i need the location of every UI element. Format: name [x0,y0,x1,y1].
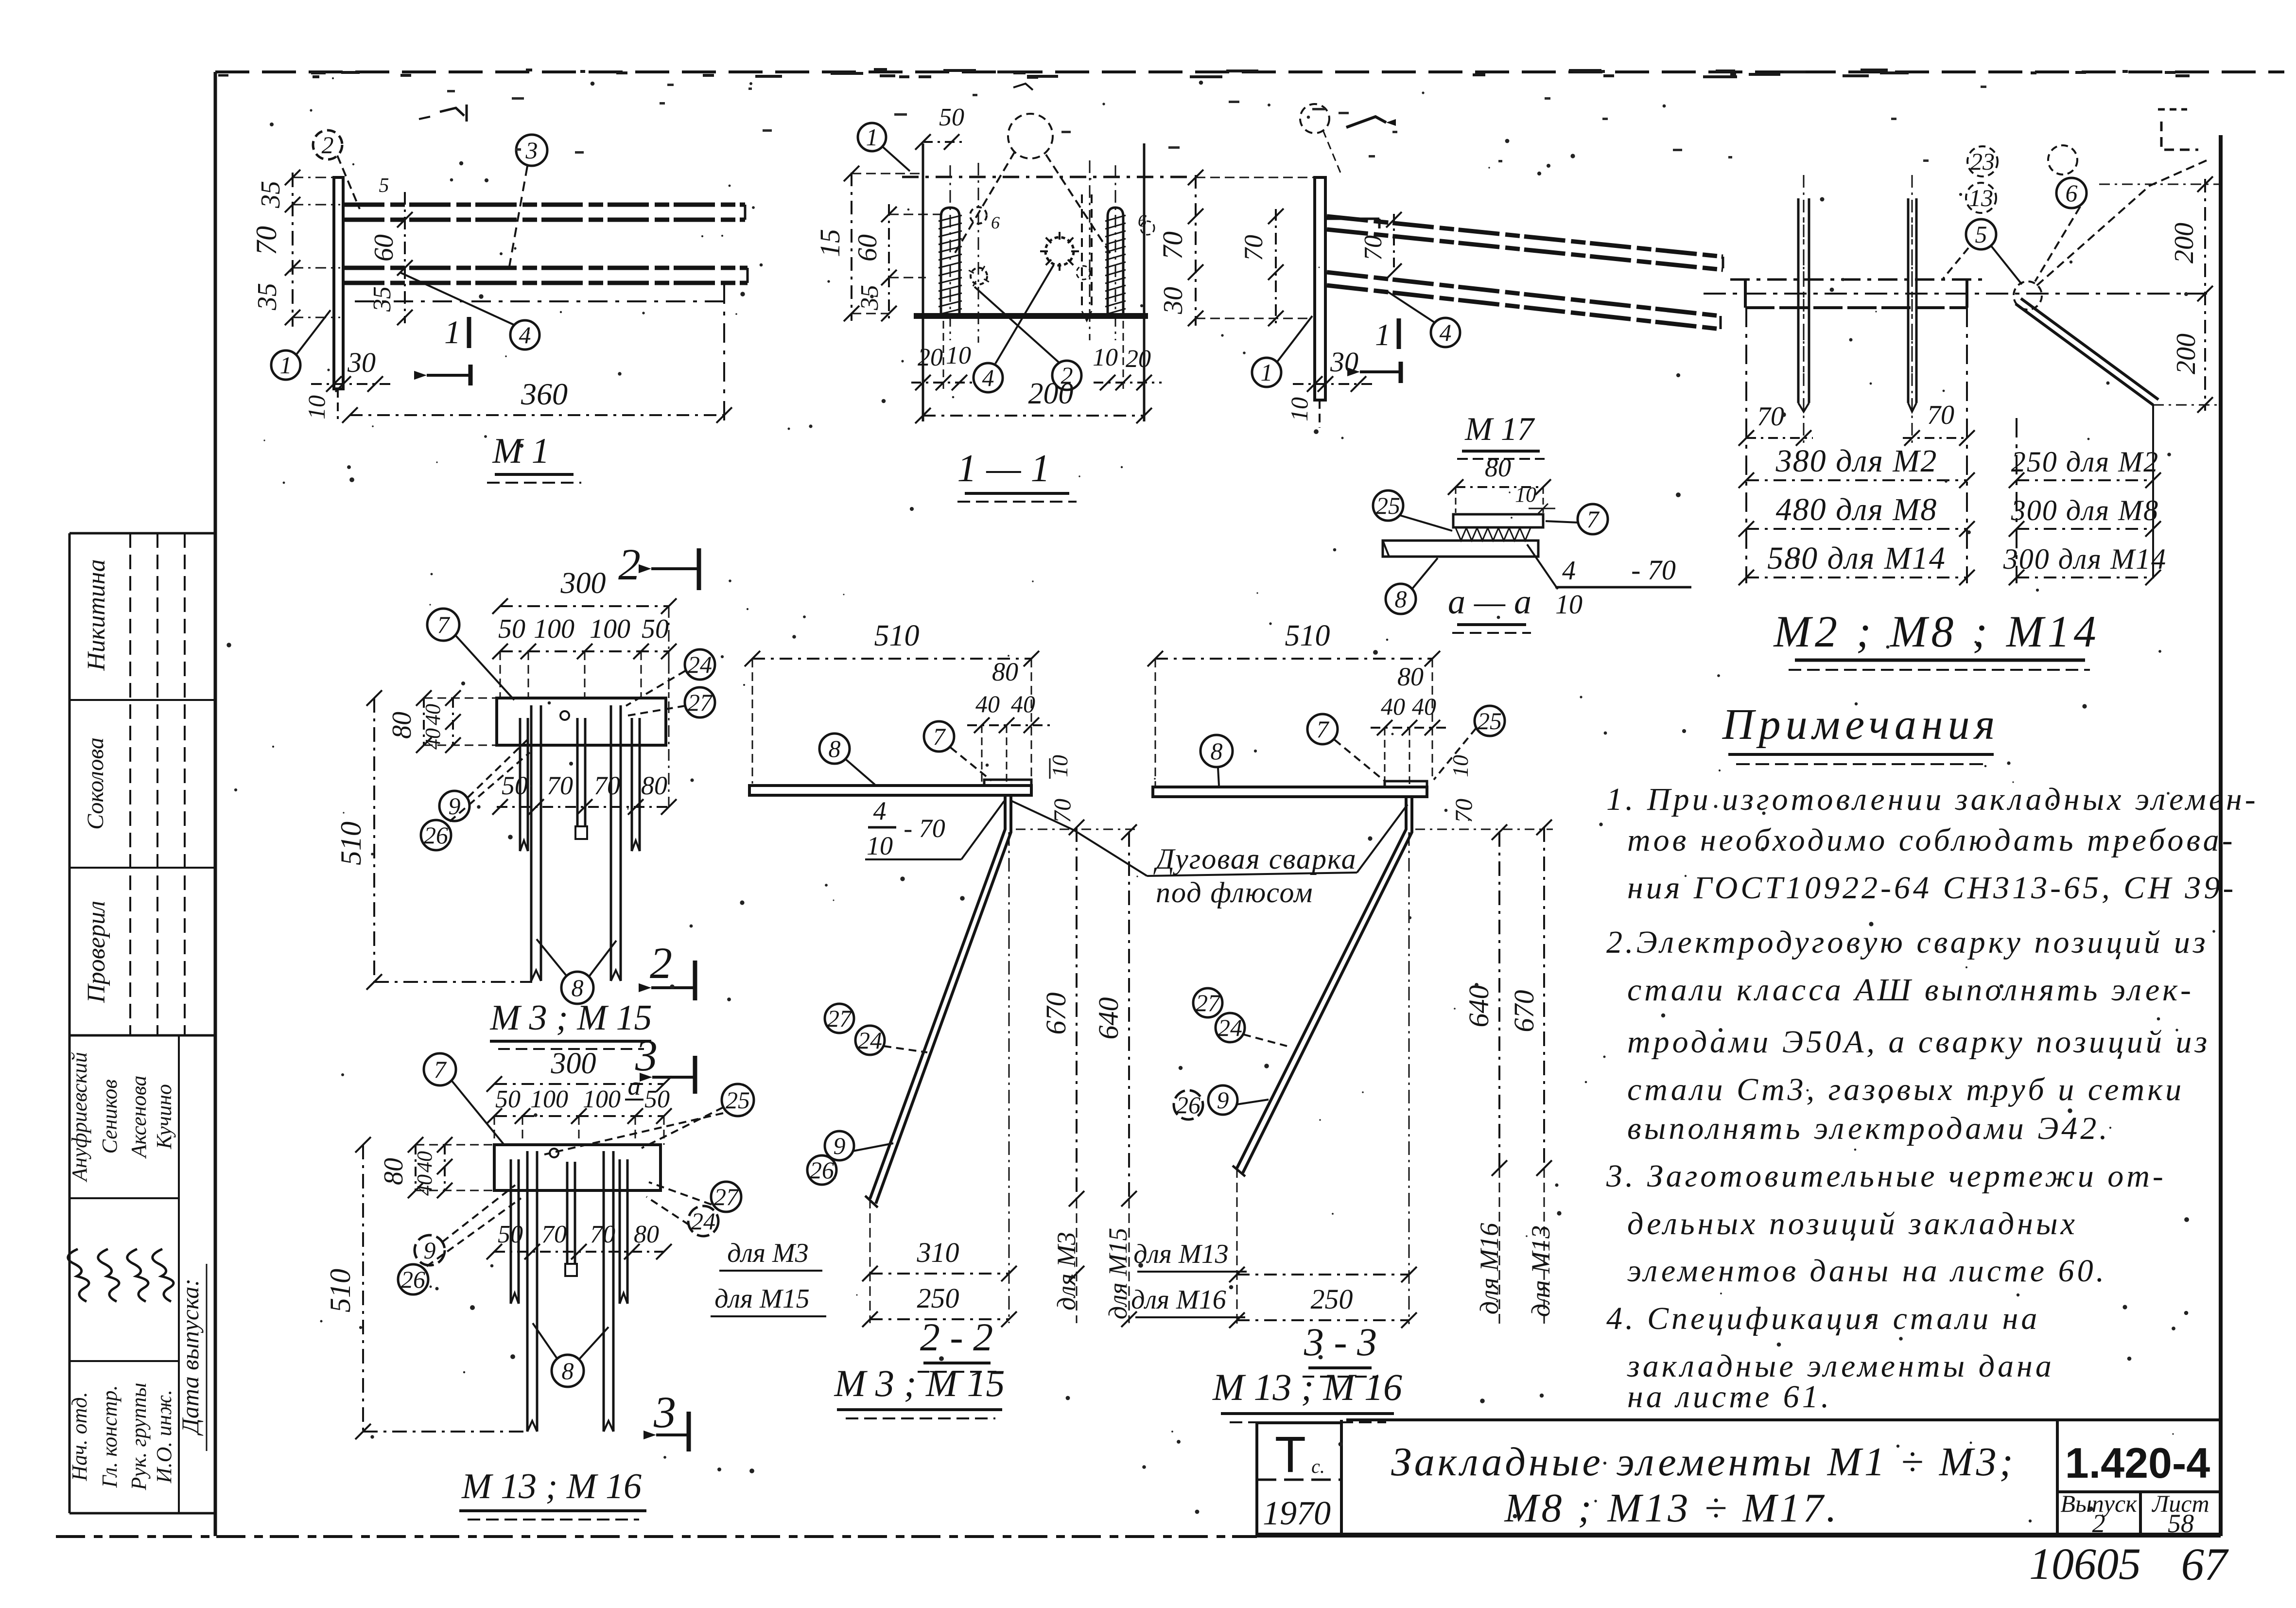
svg-text:50: 50 [939,104,964,131]
svg-text:40: 40 [1381,693,1405,720]
svg-text:13: 13 [1969,184,1993,211]
svg-text:1.420-4: 1.420-4 [2065,1439,2210,1487]
svg-text:25: 25 [1478,707,1502,734]
svg-text:510: 510 [335,821,367,865]
svg-text:8: 8 [1211,737,1223,765]
svg-text:24: 24 [858,1027,882,1054]
svg-text:50: 50 [644,1085,670,1113]
svg-text:70: 70 [547,771,573,800]
svg-text:380 для М2: 380 для М2 [1775,443,1938,479]
svg-text:50: 50 [495,1085,521,1113]
svg-text:10: 10 [867,831,893,860]
svg-text:70: 70 [1450,799,1477,823]
svg-text:3. Заготовительные чертежи о: 3. Заготовительные чертежи от- [1606,1158,2166,1194]
svg-text:580 для М14: 580 для М14 [1767,541,1946,576]
svg-text:80: 80 [634,1221,659,1248]
svg-text:5: 5 [379,175,389,197]
svg-text:тов необходимо соблюдать тр: тов необходимо соблюдать требова- [1627,822,2236,858]
svg-text:50: 50 [642,614,669,644]
svg-text:30: 30 [347,347,376,378]
svg-text:1: 1 [866,123,878,151]
svg-text:10: 10 [1286,397,1313,421]
svg-text:4: 4 [873,796,887,825]
svg-text:25: 25 [726,1086,750,1114]
svg-text:стали Ст3, газовых труб и с: стали Ст3, газовых труб и сетки [1627,1072,2184,1107]
svg-text:200: 200 [1028,377,1074,410]
svg-text:М 3 ; М 15: М 3 ; М 15 [490,998,652,1038]
svg-text:9: 9 [424,1237,436,1264]
svg-text:35: 35 [256,181,286,209]
svg-text:70: 70 [1359,235,1387,261]
svg-text:40: 40 [975,690,1000,717]
svg-text:70: 70 [590,1221,615,1248]
svg-text:9: 9 [1217,1086,1229,1114]
svg-text:2: 2 [322,131,334,158]
svg-text:23: 23 [1970,148,1995,175]
svg-text:250 для М2: 250 для М2 [2011,446,2159,478]
svg-text:24: 24 [688,651,712,678]
svg-text:100: 100 [530,1085,568,1113]
svg-text:510: 510 [324,1269,356,1312]
svg-text:10: 10 [303,395,330,419]
svg-text:200: 200 [2171,333,2201,374]
svg-text:1: 1 [444,314,461,350]
svg-text:М 13 ; М 16: М 13 ; М 16 [461,1467,642,1506]
svg-text:Дата выпуска:: Дата выпуска: [176,1278,204,1436]
svg-text:80: 80 [387,712,417,739]
svg-text:80: 80 [641,771,667,800]
svg-text:2 - 2: 2 - 2 [920,1315,993,1359]
svg-text:под флюсом: под флюсом [1156,876,1313,909]
svg-text:Кучино: Кучино [152,1084,176,1150]
svg-text:М8 ; М13 ÷ М17.: М8 ; М13 ÷ М17. [1504,1486,1840,1531]
svg-text:Дуговая сварка: Дуговая сварка [1153,843,1357,875]
svg-text:М2 ; М8 ; М14: М2 ; М8 ; М14 [1773,607,2100,656]
svg-text:для М3: для М3 [727,1238,808,1268]
svg-text:510: 510 [1285,619,1330,652]
svg-text:40: 40 [413,1151,436,1172]
svg-text:40: 40 [413,1174,436,1196]
svg-text:40: 40 [421,728,445,750]
svg-text:4. Спецификация стали на: 4. Спецификация стали на [1606,1301,2040,1336]
svg-text:640: 640 [1093,997,1124,1040]
svg-text:25: 25 [1376,492,1400,519]
svg-text:7: 7 [1587,506,1600,533]
svg-text:на листе 61.: на листе 61. [1627,1379,1832,1415]
svg-text:35: 35 [368,286,396,312]
svg-text:250: 250 [1311,1283,1353,1315]
svg-text:40: 40 [421,704,445,725]
svg-text:М 3 ; М 15: М 3 ; М 15 [834,1362,1005,1404]
svg-text:2: 2 [650,938,672,988]
svg-text:50: 50 [498,614,525,644]
svg-text:для М15: для М15 [1103,1228,1132,1319]
svg-text:24: 24 [691,1207,715,1235]
svg-text:80: 80 [1397,662,1424,691]
svg-text:4: 4 [1562,556,1576,586]
svg-text:10: 10 [1047,755,1072,777]
svg-text:6: 6 [991,213,1000,232]
svg-text:Гл. констр.: Гл. констр. [98,1385,122,1488]
svg-text:Проверил: Проверил [83,901,110,1003]
svg-text:9: 9 [449,792,461,820]
svg-text:67: 67 [2181,1538,2229,1590]
svg-text:с.: с. [1311,1455,1325,1477]
svg-text:3 - 3: 3 - 3 [1304,1320,1377,1364]
svg-text:24: 24 [1218,1014,1242,1041]
svg-text:60: 60 [369,234,399,262]
svg-text:Закладные элементы М1 ÷ М3;: Закладные элементы М1 ÷ М3; [1391,1439,2016,1485]
svg-text:300: 300 [551,1047,596,1080]
svg-text:для М16: для М16 [1131,1285,1226,1315]
svg-text:70: 70 [1757,402,1784,432]
svg-text:20: 20 [1126,345,1151,373]
svg-text:300 для М8: 300 для М8 [2011,494,2159,526]
svg-text:7: 7 [1317,716,1330,743]
svg-text:Аксенова: Аксенова [127,1076,151,1159]
svg-text:6: 6 [1138,211,1147,230]
svg-text:27: 27 [827,1005,852,1032]
svg-text:70: 70 [250,226,282,255]
svg-text:И.О. инж.: И.О. инж. [152,1390,176,1484]
svg-text:200: 200 [2169,223,2199,263]
svg-text:Рук. группы: Рук. группы [127,1383,151,1491]
svg-text:Нач. отд.: Нач. отд. [68,1392,91,1481]
svg-text:7: 7 [437,611,451,638]
svg-text:10605: 10605 [2029,1539,2141,1589]
svg-text:6: 6 [2066,179,2078,207]
svg-text:26: 26 [1176,1091,1200,1119]
svg-text:1: 1 [1261,359,1273,386]
svg-text:15: 15 [814,229,846,257]
svg-text:1: 1 [1375,317,1391,352]
svg-text:58: 58 [2168,1509,2194,1538]
svg-text:70: 70 [1239,235,1268,261]
svg-text:М 1: М 1 [492,431,549,471]
svg-text:40: 40 [1412,693,1436,720]
svg-text:26: 26 [424,821,448,849]
svg-text:Сеников: Сеников [98,1079,122,1154]
svg-text:1970: 1970 [1263,1495,1331,1532]
svg-text:для М15: для М15 [714,1284,809,1314]
svg-text:640: 640 [1463,985,1495,1028]
svg-text:670: 670 [1508,990,1540,1032]
svg-text:80: 80 [992,657,1018,686]
svg-text:1. При изготовлении закладных: 1. При изготовлении закладных элемен- [1606,782,2259,817]
svg-text:3: 3 [653,1387,676,1437]
svg-text:Ануфриевский: Ануфриевский [68,1052,91,1183]
svg-text:8: 8 [1395,585,1407,612]
svg-text:10: 10 [1555,590,1583,620]
svg-text:310: 310 [917,1237,959,1268]
svg-text:35: 35 [856,285,884,311]
svg-text:26: 26 [401,1266,425,1293]
svg-text:2.Электродуговую сварку пози: 2.Электродуговую сварку позиций из [1606,925,2209,960]
svg-text:а: а [628,1071,641,1101]
svg-text:М 13 ; М 16: М 13 ; М 16 [1212,1366,1402,1408]
svg-text:26: 26 [810,1156,834,1184]
svg-text:4: 4 [982,364,994,391]
svg-text:ния ГОСТ10922-64 СН313-65, СН: ния ГОСТ10922-64 СН313-65, СН 39- [1627,870,2236,906]
svg-text:1 — 1: 1 — 1 [957,447,1050,490]
svg-text:100: 100 [590,614,630,644]
svg-text:М 17: М 17 [1464,410,1535,447]
svg-text:дельных позиций закладных: дельных позиций закладных [1627,1206,2078,1241]
svg-text:360: 360 [521,377,568,411]
svg-text:35: 35 [252,283,282,311]
svg-text:7: 7 [933,723,946,750]
svg-text:10: 10 [946,342,971,369]
svg-text:3: 3 [525,137,538,164]
svg-text:2: 2 [618,540,641,589]
svg-text:40: 40 [1011,690,1035,717]
svg-text:510: 510 [874,619,920,652]
svg-text:7: 7 [434,1056,447,1083]
svg-text:а — а: а — а [1448,582,1531,621]
svg-text:670: 670 [1040,993,1072,1035]
svg-text:70: 70 [541,1221,567,1248]
svg-text:100: 100 [583,1085,621,1113]
svg-text:10: 10 [1515,483,1536,507]
svg-text:27: 27 [688,689,713,716]
svg-text:Т: Т [1275,1426,1306,1483]
svg-text:4: 4 [1440,319,1452,346]
svg-text:70: 70 [594,771,620,800]
svg-text:60: 60 [852,234,883,262]
svg-text:2: 2 [2092,1509,2105,1538]
svg-text:27: 27 [714,1183,739,1210]
svg-text:70: 70 [1927,400,1954,430]
svg-text:480 для М8: 480 для М8 [1776,492,1938,527]
svg-text:4: 4 [519,321,531,349]
svg-text:стали класса АШ выполнять: стали класса АШ выполнять элек- [1627,972,2194,1008]
svg-text:10: 10 [1448,755,1473,777]
svg-text:тродами Э50А, а сварку позиц: тродами Э50А, а сварку позиций из [1627,1024,2210,1060]
svg-text:30: 30 [1158,287,1188,315]
svg-text:- 70: - 70 [904,814,945,843]
svg-text:8: 8 [572,974,584,1001]
svg-text:10: 10 [1093,344,1118,371]
svg-text:Примечания: Примечания [1722,700,2000,749]
svg-text:выполнять электродами Э42.: выполнять электродами Э42. [1627,1111,2110,1146]
svg-text:8: 8 [829,735,841,762]
svg-text:для М13: для М13 [1526,1225,1555,1317]
svg-text:20: 20 [918,344,943,371]
svg-text:80: 80 [379,1158,409,1185]
svg-text:300: 300 [560,567,606,600]
svg-text:- 70: - 70 [1631,554,1676,586]
svg-text:300 для М14: 300 для М14 [2003,543,2167,575]
svg-text:1: 1 [280,351,292,379]
svg-text:70: 70 [1157,231,1188,260]
svg-text:Соколова: Соколова [83,737,108,830]
svg-text:27: 27 [1196,989,1221,1016]
svg-text:50: 50 [502,771,528,800]
svg-text:8: 8 [562,1357,574,1384]
svg-text:5: 5 [1975,221,1987,248]
svg-text:для М13: для М13 [1133,1239,1228,1269]
svg-text:Никитина: Никитина [83,559,110,671]
svg-text:100: 100 [534,614,574,644]
svg-text:250: 250 [917,1282,959,1314]
svg-text:элементов даны на листе 60: элементов даны на листе 60. [1627,1253,2107,1289]
svg-text:9: 9 [834,1132,846,1159]
svg-text:80: 80 [1485,453,1511,482]
